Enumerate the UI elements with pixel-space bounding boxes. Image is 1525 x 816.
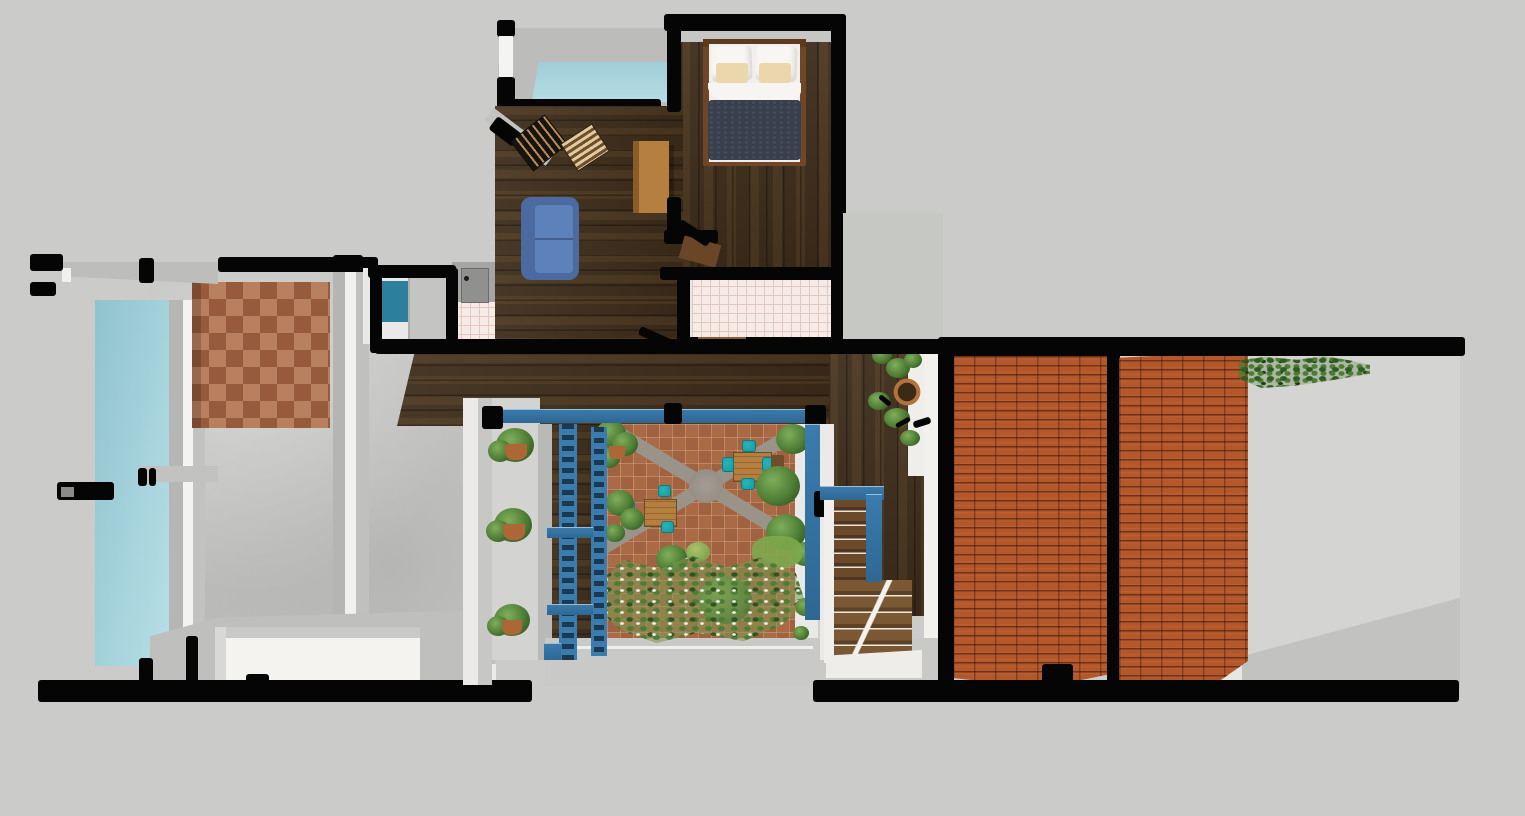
facade-mullion [169,300,183,666]
wall-bathroom-left [677,267,690,345]
wall-stub [1042,664,1073,683]
wall-utility-divider [446,268,458,342]
floorplan-render [0,0,1525,816]
cushion-right [759,63,791,83]
plant-pot [505,444,527,460]
plant-pot [503,524,525,540]
faucet [464,276,469,281]
wall-cut-end [30,282,56,296]
plant [605,524,625,542]
stairs-lower-flight [834,580,912,656]
plant [793,626,809,640]
blue-trellis-frame [559,424,577,660]
pergola-beam [487,409,820,423]
brick-wall-panel-2 [1119,351,1248,688]
wall-top-right-wing [938,337,1465,356]
pergola-post [664,403,682,424]
wall-tick [138,468,147,486]
teal-chair [658,485,671,497]
teal-chair [722,457,734,472]
pergola-post [482,406,503,429]
teal-chair [741,478,755,490]
beam-core [61,487,74,497]
plant [756,466,800,506]
blue-trellis-frame [591,427,607,656]
hanging-plant-leaf [900,430,920,446]
kitchen-tile-floor [452,298,498,345]
wall-tick [149,468,156,486]
roof-slab [843,213,943,348]
wall-stub [246,674,269,685]
trellis-brace [547,604,593,615]
planter-ledge-wall [538,424,552,660]
courtyard-west-gray-wall [478,398,492,685]
teal-chair [661,521,674,533]
roof-white-sliver [62,268,71,282]
wall-hall-east [938,350,954,700]
brick-gap-slot [1107,356,1120,688]
terracotta-checker-rug [192,282,330,428]
stair-stringer-white [824,498,834,663]
wall-bedroom-top [664,14,846,31]
kitchen-sink [461,268,489,303]
courtyard-west-white-wall [463,398,478,685]
plunge-pool [529,62,668,102]
wall-stub [333,255,363,270]
trellis-shoe [544,643,561,660]
pergola-column-east [805,424,820,620]
stair-railing-vertical [866,494,882,582]
basin-rim [215,627,420,638]
basin-rim-left [215,627,226,683]
wall-terrace-post [497,20,515,37]
wall-bottom-left [38,680,532,702]
wall-stub [139,258,154,283]
plant [620,508,644,530]
desk-edge [633,141,639,213]
navy-duvet [708,100,801,160]
wall-cut-end [30,254,63,271]
brick-wall-panel-1 [953,356,1107,688]
wall-stub [139,658,153,685]
wall-stub [186,636,198,685]
plant-pot [502,620,522,635]
path-center-hub [689,469,723,503]
trellis-brace [547,527,593,538]
bathroom-tile-floor [692,277,832,345]
teal-glass-panel [378,281,408,322]
teal-chair [742,440,756,452]
hanging-plant-pot [891,376,923,408]
sofa-cushion-split [535,238,573,240]
wall-bedroom-left [667,14,681,112]
cushion-left [716,63,748,83]
checker-edge-shade [192,282,201,428]
plant-pot [609,446,625,459]
wall-bottom-right [813,680,1459,702]
white-post [499,36,513,78]
hanging-plant-leaf [904,352,922,368]
